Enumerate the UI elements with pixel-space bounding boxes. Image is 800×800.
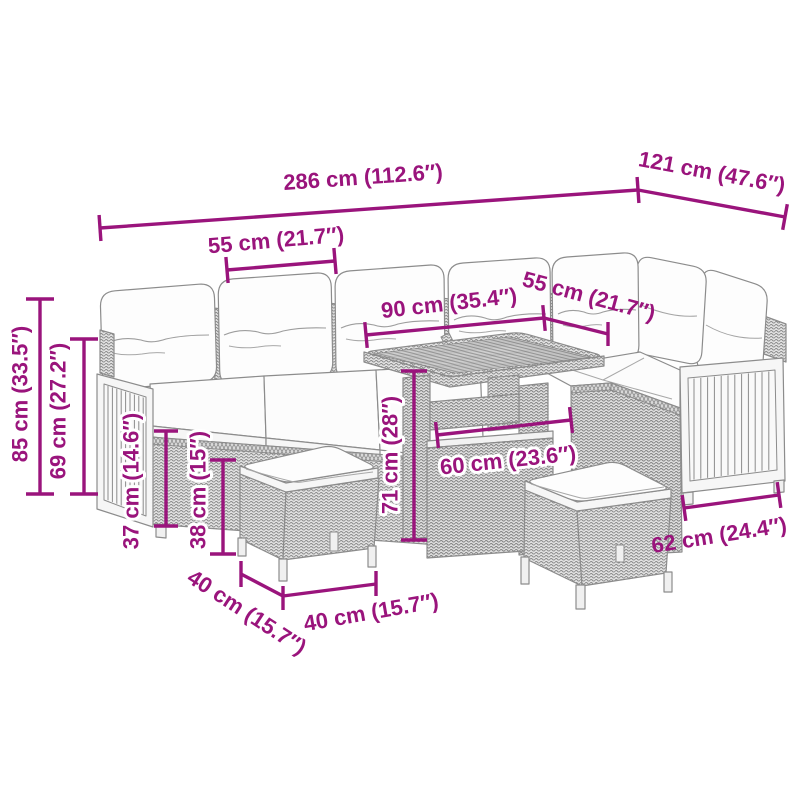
svg-text:85 cm (33.5″): 85 cm (33.5″) (8, 326, 33, 463)
svg-text:38 cm (15″): 38 cm (15″) (186, 431, 211, 549)
svg-text:71 cm (28″): 71 cm (28″) (378, 396, 403, 514)
svg-text:37 cm (14.6″): 37 cm (14.6″) (119, 413, 144, 550)
svg-text:69 cm (27.2″): 69 cm (27.2″) (46, 343, 71, 480)
